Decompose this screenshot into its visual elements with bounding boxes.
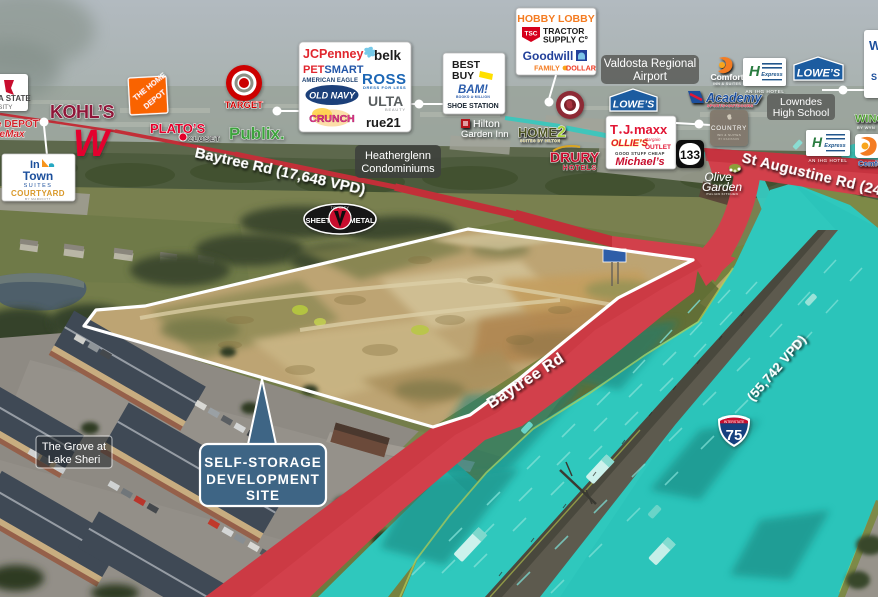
svg-text:INN & SUITES: INN & SUITES <box>713 82 742 86</box>
svg-text:maxx: maxx <box>634 122 668 137</box>
svg-text:BY MARRIOTT: BY MARRIOTT <box>25 197 51 201</box>
svg-text:TARGET: TARGET <box>225 100 263 110</box>
svg-text:Town: Town <box>23 169 53 183</box>
svg-text:High School: High School <box>773 107 830 119</box>
svg-text:Express: Express <box>761 72 782 78</box>
svg-text:BY WYN: BY WYN <box>857 125 875 130</box>
svg-text:DRESS FOR LESS: DRESS FOR LESS <box>363 85 406 90</box>
svg-text:H: H <box>812 134 823 150</box>
svg-text:DRURY: DRURY <box>550 149 600 165</box>
svg-text:133: 133 <box>680 148 700 162</box>
svg-text:SHOE STATION: SHOE STATION <box>447 103 498 110</box>
svg-text:W: W <box>869 38 878 53</box>
svg-text:Michael’s: Michael’s <box>615 156 664 168</box>
svg-text:AMERICAN EAGLE: AMERICAN EAGLE <box>302 78 358 84</box>
svg-text:SELF-STORAGE: SELF-STORAGE <box>204 455 322 470</box>
svg-text:Valdosta Regional: Valdosta Regional <box>604 58 697 70</box>
svg-text:Condominiums: Condominiums <box>361 163 435 175</box>
svg-text:COUNTRY: COUNTRY <box>711 125 747 132</box>
svg-text:HOTELS: HOTELS <box>563 165 597 172</box>
svg-text:FAMILY: FAMILY <box>534 64 560 73</box>
svg-text:Bargain: Bargain <box>645 137 661 142</box>
svg-text:TRI CITY: TRI CITY <box>331 206 350 210</box>
svg-text:SHEET: SHEET <box>305 216 330 225</box>
svg-text:ITALIAN KITCHEN: ITALIAN KITCHEN <box>706 192 739 196</box>
svg-text:belk: belk <box>374 48 402 63</box>
svg-text:Goodwill: Goodwill <box>523 49 574 63</box>
svg-text:rue21: rue21 <box>366 115 401 130</box>
svg-text:LOWE’S: LOWE’S <box>797 68 841 80</box>
svg-text:OLLIE’S: OLLIE’S <box>611 138 649 149</box>
svg-text:Airport: Airport <box>633 71 668 83</box>
svg-text:WING: WING <box>855 113 878 125</box>
svg-text:TSC: TSC <box>525 31 538 38</box>
svg-text:DOLLAR: DOLLAR <box>566 64 597 73</box>
svg-text:W: W <box>73 123 112 165</box>
svg-text:Publix.: Publix. <box>229 124 285 143</box>
svg-text:OLD NAVY: OLD NAVY <box>309 91 356 101</box>
svg-text:BUY: BUY <box>452 70 474 82</box>
svg-text:SITY: SITY <box>0 104 13 111</box>
svg-text:JCPenney: JCPenney <box>303 47 363 61</box>
svg-text:SPORTS+OUTDOORS: SPORTS+OUTDOORS <box>707 103 753 108</box>
svg-text:BY RADISSON: BY RADISSON <box>719 137 740 141</box>
svg-text:INTERSTATE: INTERSTATE <box>724 420 745 424</box>
svg-text:Garden Inn: Garden Inn <box>461 129 509 140</box>
svg-text:HOBBY LOBBY: HOBBY LOBBY <box>517 13 594 25</box>
svg-text:Comfor: Comfor <box>858 159 878 168</box>
svg-text:INN & SUITES: INN & SUITES <box>717 133 741 137</box>
svg-text:OUTLET: OUTLET <box>645 144 671 151</box>
svg-text:Heatherglenn: Heatherglenn <box>365 150 431 162</box>
svg-text:DEVELOPMENT: DEVELOPMENT <box>206 472 320 487</box>
svg-text:SUITES BY HILTON: SUITES BY HILTON <box>520 139 561 143</box>
svg-text:CLOSET: CLOSET <box>188 136 220 143</box>
svg-text:The Grove at: The Grove at <box>42 441 106 453</box>
svg-text:BOOKS·A·MILLION: BOOKS·A·MILLION <box>456 95 490 99</box>
svg-text:PETSMART: PETSMART <box>303 64 364 76</box>
svg-text:Express: Express <box>824 143 845 149</box>
svg-text:Lake Sheri: Lake Sheri <box>48 454 101 466</box>
svg-text:BEAUTY: BEAUTY <box>385 107 406 112</box>
svg-text:T: T <box>610 122 618 137</box>
svg-text:SUPPLY Cº: SUPPLY Cº <box>543 35 588 45</box>
svg-text:SITE: SITE <box>246 488 280 503</box>
svg-text:KOHL’S: KOHL’S <box>50 102 115 122</box>
svg-text:75: 75 <box>726 427 743 444</box>
svg-text:S: S <box>871 72 877 82</box>
svg-text:METAL: METAL <box>349 216 375 225</box>
svg-text:A STATE: A STATE <box>0 94 31 103</box>
svg-text:LOWE’S: LOWE’S <box>613 99 654 111</box>
svg-text:Comfort: Comfort <box>710 72 743 82</box>
svg-text:CRUNCH: CRUNCH <box>309 113 355 125</box>
svg-text:ceMax: ceMax <box>0 129 25 140</box>
svg-text:J: J <box>623 122 630 137</box>
svg-text:PLATO’S: PLATO’S <box>150 121 205 136</box>
svg-text:AN IHG HOTEL: AN IHG HOTEL <box>809 158 848 163</box>
svg-text:H: H <box>749 63 761 80</box>
